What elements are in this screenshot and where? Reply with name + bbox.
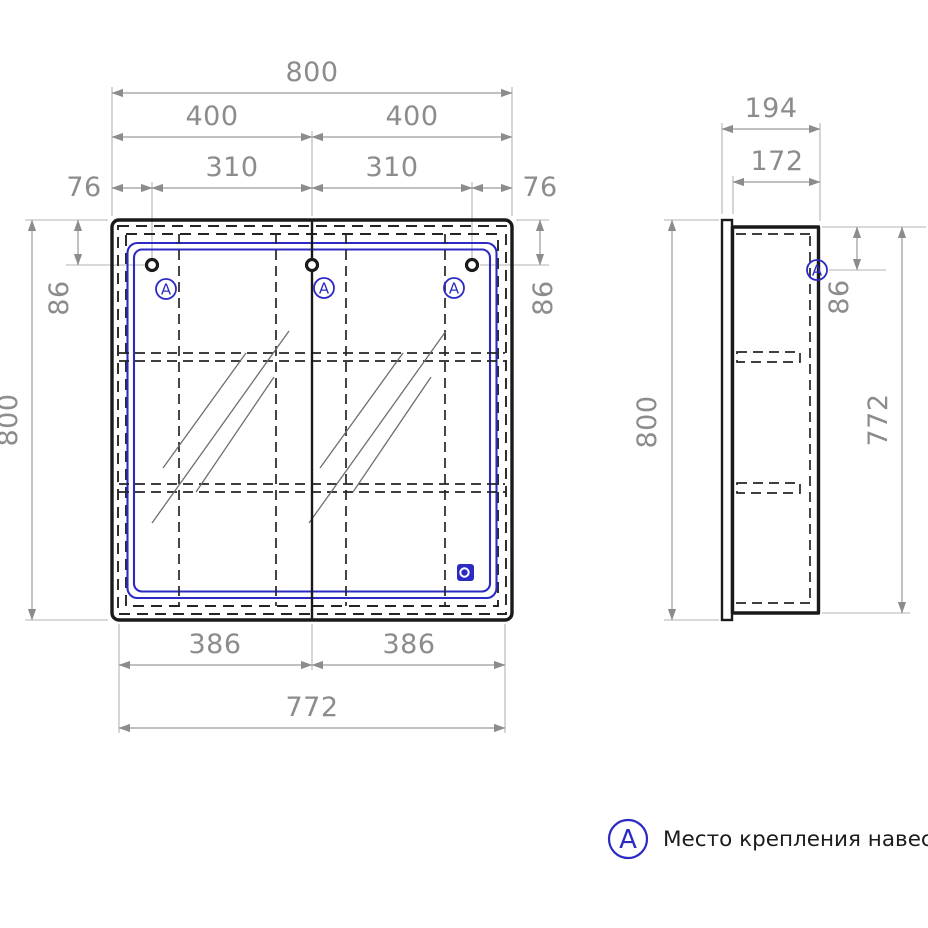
dim-hook-top-offset-right: 86 <box>528 280 559 315</box>
dim-doors-total-width: 772 <box>285 692 338 723</box>
mounting-hole-center <box>307 260 318 271</box>
legend-text: Место крепления навесов <box>663 827 928 852</box>
dim-door-width-right: 386 <box>382 629 435 660</box>
touch-sensor-icon <box>457 564 474 581</box>
side-view: 194 172 800 86 772 А <box>632 93 926 620</box>
dim-body-height: 772 <box>863 393 894 446</box>
dim-half-width-right: 400 <box>385 101 438 132</box>
dim-overall-depth: 194 <box>744 93 797 124</box>
dim-overall-width: 800 <box>285 57 338 88</box>
dim-edge-offset-right: 76 <box>522 172 557 203</box>
marker-a-right-label: А <box>449 280 460 298</box>
mounting-holes <box>147 260 478 271</box>
dim-side-overall-height: 800 <box>632 395 663 448</box>
mounting-hole-right <box>467 260 478 271</box>
marker-a-center-label: А <box>319 280 330 298</box>
marker-a-center: А <box>314 278 334 298</box>
dim-hook-spacing-right: 310 <box>365 152 418 183</box>
front-dimension-lines <box>32 93 540 728</box>
front-extension-lines <box>25 87 549 733</box>
marker-a-left-label: А <box>161 281 172 299</box>
marker-a-left: А <box>156 279 176 299</box>
legend: А Место крепления навесов <box>609 820 928 858</box>
dim-overall-height: 800 <box>0 393 24 446</box>
side-hidden-lines <box>736 234 810 603</box>
mounting-hole-left <box>147 260 158 271</box>
dim-edge-offset-left: 76 <box>66 172 101 203</box>
legend-marker-label: А <box>619 825 637 855</box>
dim-hook-top-offset-left: 86 <box>44 280 75 315</box>
dim-side-hook-top-offset: 86 <box>824 279 855 314</box>
cabinet-drawing-svg: 800 400 400 310 310 76 76 800 86 86 386 … <box>0 0 928 928</box>
dim-door-width-left: 386 <box>188 629 241 660</box>
marker-a-right: А <box>444 278 464 298</box>
side-body-outline <box>733 227 819 613</box>
dim-hook-spacing-left: 310 <box>205 152 258 183</box>
side-extension-lines <box>664 123 926 620</box>
side-door-strip <box>722 220 732 620</box>
front-view: 800 400 400 310 310 76 76 800 86 86 386 … <box>0 57 559 733</box>
mirror-hatch-lines <box>152 331 446 523</box>
side-dimension-lines <box>672 129 902 620</box>
technical-drawing-page: 800 400 400 310 310 76 76 800 86 86 386 … <box>0 0 928 928</box>
marker-a-side-label: А <box>812 262 823 280</box>
dim-body-depth: 172 <box>750 146 803 177</box>
dim-half-width-left: 400 <box>185 101 238 132</box>
